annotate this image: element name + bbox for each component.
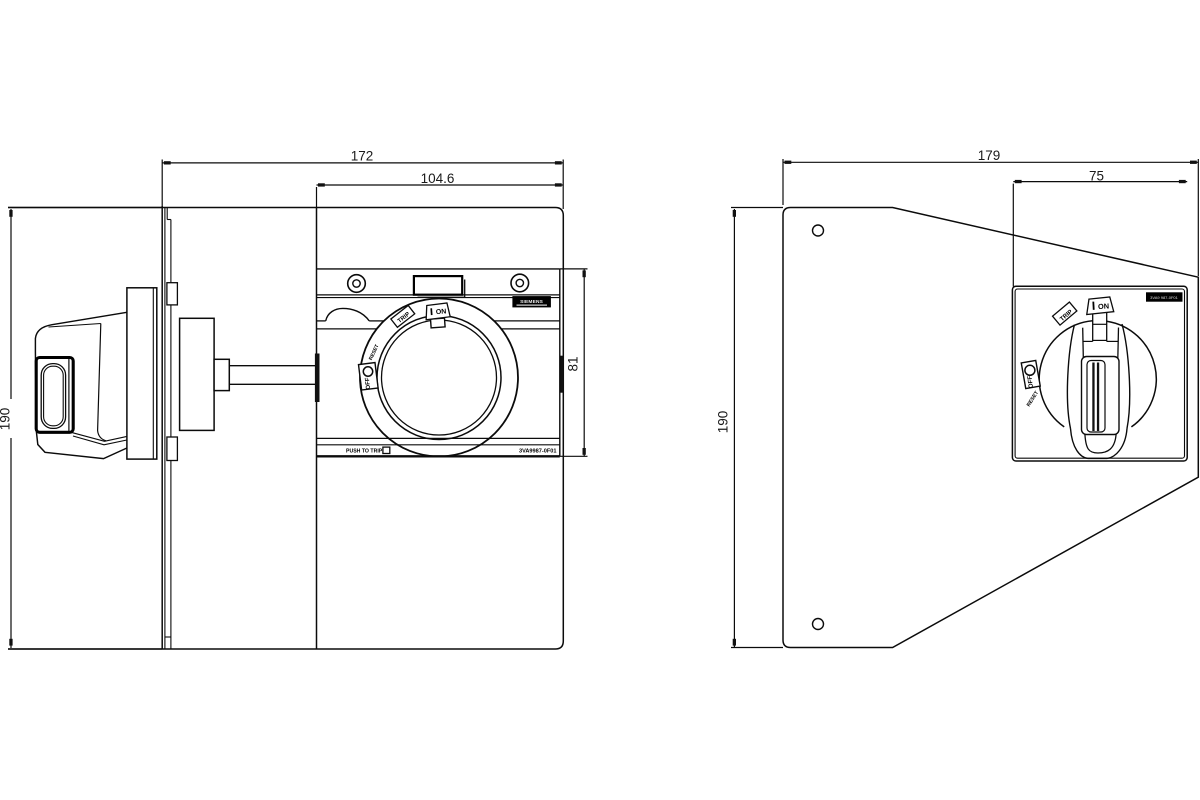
svg-text:OFF: OFF: [365, 377, 372, 390]
svg-text:190: 190: [0, 408, 13, 431]
svg-text:81: 81: [566, 356, 581, 371]
svg-text:ON: ON: [436, 308, 447, 316]
svg-text:3VA9987-0F01: 3VA9987-0F01: [519, 449, 557, 455]
svg-text:104.6: 104.6: [421, 171, 455, 186]
svg-text:ON: ON: [1098, 302, 1110, 312]
svg-text:179: 179: [978, 148, 1001, 163]
svg-text:172: 172: [351, 148, 374, 163]
svg-text:75: 75: [1089, 169, 1104, 184]
svg-text:PUSH TO TRIP: PUSH TO TRIP: [346, 448, 383, 454]
svg-text:190: 190: [716, 411, 731, 434]
svg-text:3VA9 987-0F01: 3VA9 987-0F01: [1150, 295, 1178, 300]
svg-text:SIEMENS: SIEMENS: [520, 299, 544, 305]
